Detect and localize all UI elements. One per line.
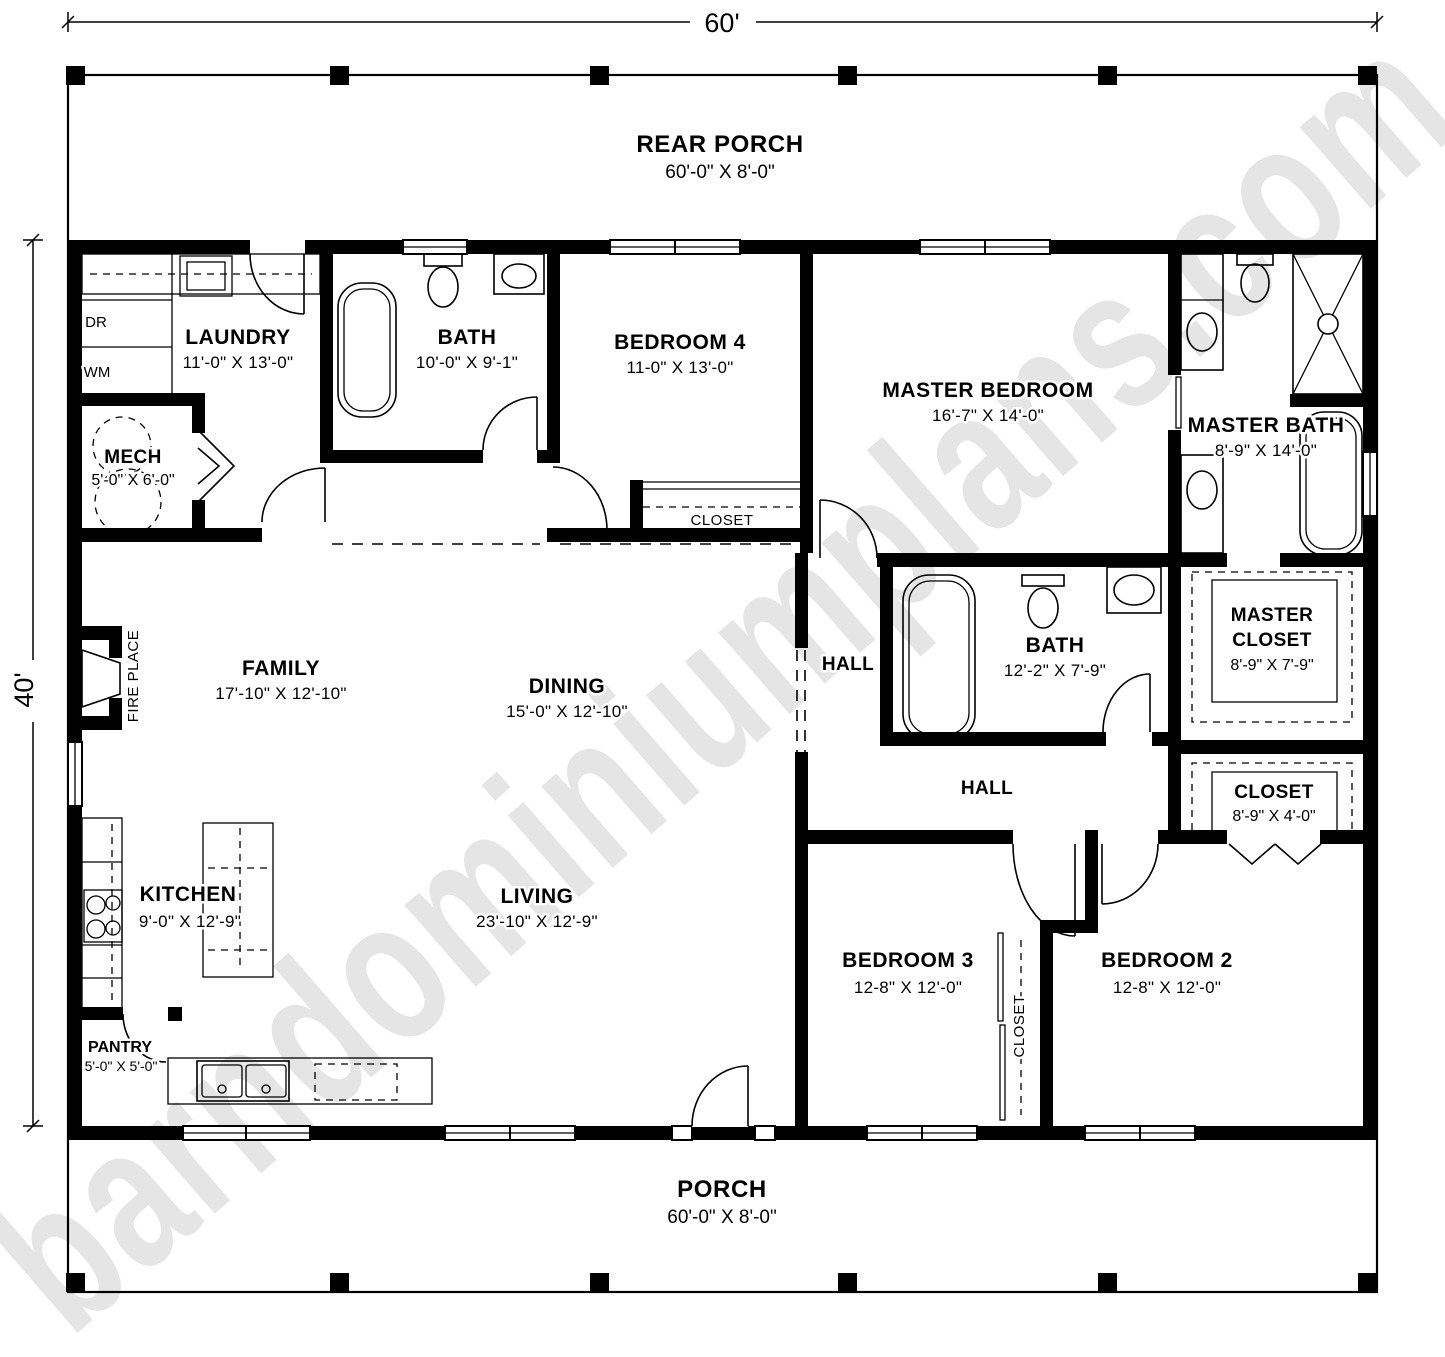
toilet-mid <box>1022 575 1064 628</box>
sink-top <box>494 254 544 294</box>
floor-plan-page: barndominiumplans.com 60' 40' <box>0 0 1445 1357</box>
family-label: FAMILY <box>242 657 320 680</box>
window-family <box>68 742 82 806</box>
window-living <box>445 1126 575 1140</box>
laundry-label: LAUNDRY <box>185 326 290 349</box>
bedroom4-door <box>553 467 607 530</box>
hall-upper-label: HALL <box>822 654 874 675</box>
washer-label: WM <box>84 364 111 381</box>
kitchen-left-counter <box>82 818 122 1008</box>
hall-closet-bifold-door <box>1229 844 1321 864</box>
mech-label: MECH <box>104 447 162 468</box>
overall-depth-label: 40' <box>9 672 39 707</box>
hall-lower-label: HALL <box>961 778 1013 799</box>
bath-top-dims: 10'-0" X 9'-1" <box>416 353 518 372</box>
window-master-bedroom <box>920 240 1050 254</box>
bath-mid-dims: 12'-2" X 7'-9" <box>1004 661 1106 680</box>
kitchen-stove <box>84 890 122 942</box>
master-bath-vanity-2 <box>1181 455 1223 553</box>
hall-double-door <box>262 468 325 522</box>
watermark: barndominiumplans.com <box>0 0 1445 1357</box>
laundry-dims: 11'-0" X 13'-0" <box>183 353 294 372</box>
toilet-top <box>424 254 462 307</box>
sink-mid <box>1107 567 1161 613</box>
master-bath-dims: 8'-9" X 14'-0" <box>1215 441 1317 460</box>
master-closet-label-1: MASTER <box>1231 605 1314 626</box>
overall-width-label: 60' <box>704 8 739 38</box>
family-dims: 17'-10" X 12'-10" <box>215 684 346 703</box>
master-closet-dims: 8'-9" X 7'-9" <box>1230 657 1313 674</box>
window-bedroom4 <box>610 240 740 254</box>
master-bath-label: MASTER BATH <box>1188 414 1345 437</box>
master-closet-label-2: CLOSET <box>1232 630 1311 651</box>
kitchen-dims: 9'-0" X 12'-9" <box>139 912 241 931</box>
front-door <box>692 1066 748 1126</box>
pantry-dims: 5'-0" X 5'-0" <box>85 1058 158 1074</box>
front-porch-label: PORCH <box>677 1176 767 1203</box>
dining-label: DINING <box>529 675 606 698</box>
bedroom3-closet-label: CLOSET <box>1011 994 1028 1057</box>
pantry-label: PANTRY <box>88 1039 152 1056</box>
dryer-label: DR <box>85 314 107 331</box>
living-label: LIVING <box>500 885 573 908</box>
kitchen-label: KITCHEN <box>140 883 237 906</box>
bedroom4-closet-label: CLOSET <box>690 512 753 529</box>
bedroom2-label: BEDROOM 2 <box>1101 949 1233 972</box>
bath-top-door <box>483 397 537 450</box>
hall-closet-label: CLOSET <box>1234 782 1313 803</box>
bedroom3-closet-doors <box>998 933 1005 1120</box>
bedroom4-label: BEDROOM 4 <box>614 331 746 354</box>
watermark-text: barndominiumplans.com <box>0 0 1445 1357</box>
mech-dims: 5'-0" X 6'-0" <box>91 472 174 489</box>
master-bedroom-label: MASTER BEDROOM <box>882 379 1093 402</box>
rear-porch-dims: 60'-0" X 8'-0" <box>665 162 774 183</box>
window-bedroom2 <box>1085 1126 1195 1140</box>
bedroom3-dims: 12-8" X 12'-0" <box>854 978 962 997</box>
living-dims: 23'-10" X 12'-9" <box>476 912 598 931</box>
mech-bifold-door <box>198 430 234 502</box>
wall-openings <box>250 239 305 255</box>
window-master-bath <box>1363 452 1377 516</box>
bath-mid-label: BATH <box>1026 634 1085 657</box>
window-bath-top <box>403 240 467 254</box>
window-kitchen <box>183 1126 310 1140</box>
fireplace-label: FIRE PLACE <box>125 630 142 723</box>
bedroom2-door <box>1102 844 1158 904</box>
bedroom4-dims: 11-0" X 13'-0" <box>626 358 733 377</box>
window-bedroom3 <box>867 1126 977 1140</box>
hall-closet-dims: 8'-9" X 4'-0" <box>1232 808 1315 825</box>
floor-plan-drawing: barndominiumplans.com 60' 40' <box>0 0 1445 1357</box>
dining-dims: 15'-0" X 12'-10" <box>506 702 628 721</box>
laundry-counter <box>82 254 320 393</box>
front-porch-dims: 60'-0" X 8'-0" <box>667 1207 776 1228</box>
bedroom3-label: BEDROOM 3 <box>842 949 974 972</box>
rear-porch-label: REAR PORCH <box>636 131 803 158</box>
master-bedroom-dims: 16'-7" X 14'-0" <box>932 406 1044 425</box>
bath-top-label: BATH <box>438 326 497 349</box>
bathtub-top <box>338 283 396 417</box>
bedroom2-dims: 12-8" X 12'-0" <box>1113 978 1221 997</box>
bath-mid-door <box>1103 674 1150 732</box>
